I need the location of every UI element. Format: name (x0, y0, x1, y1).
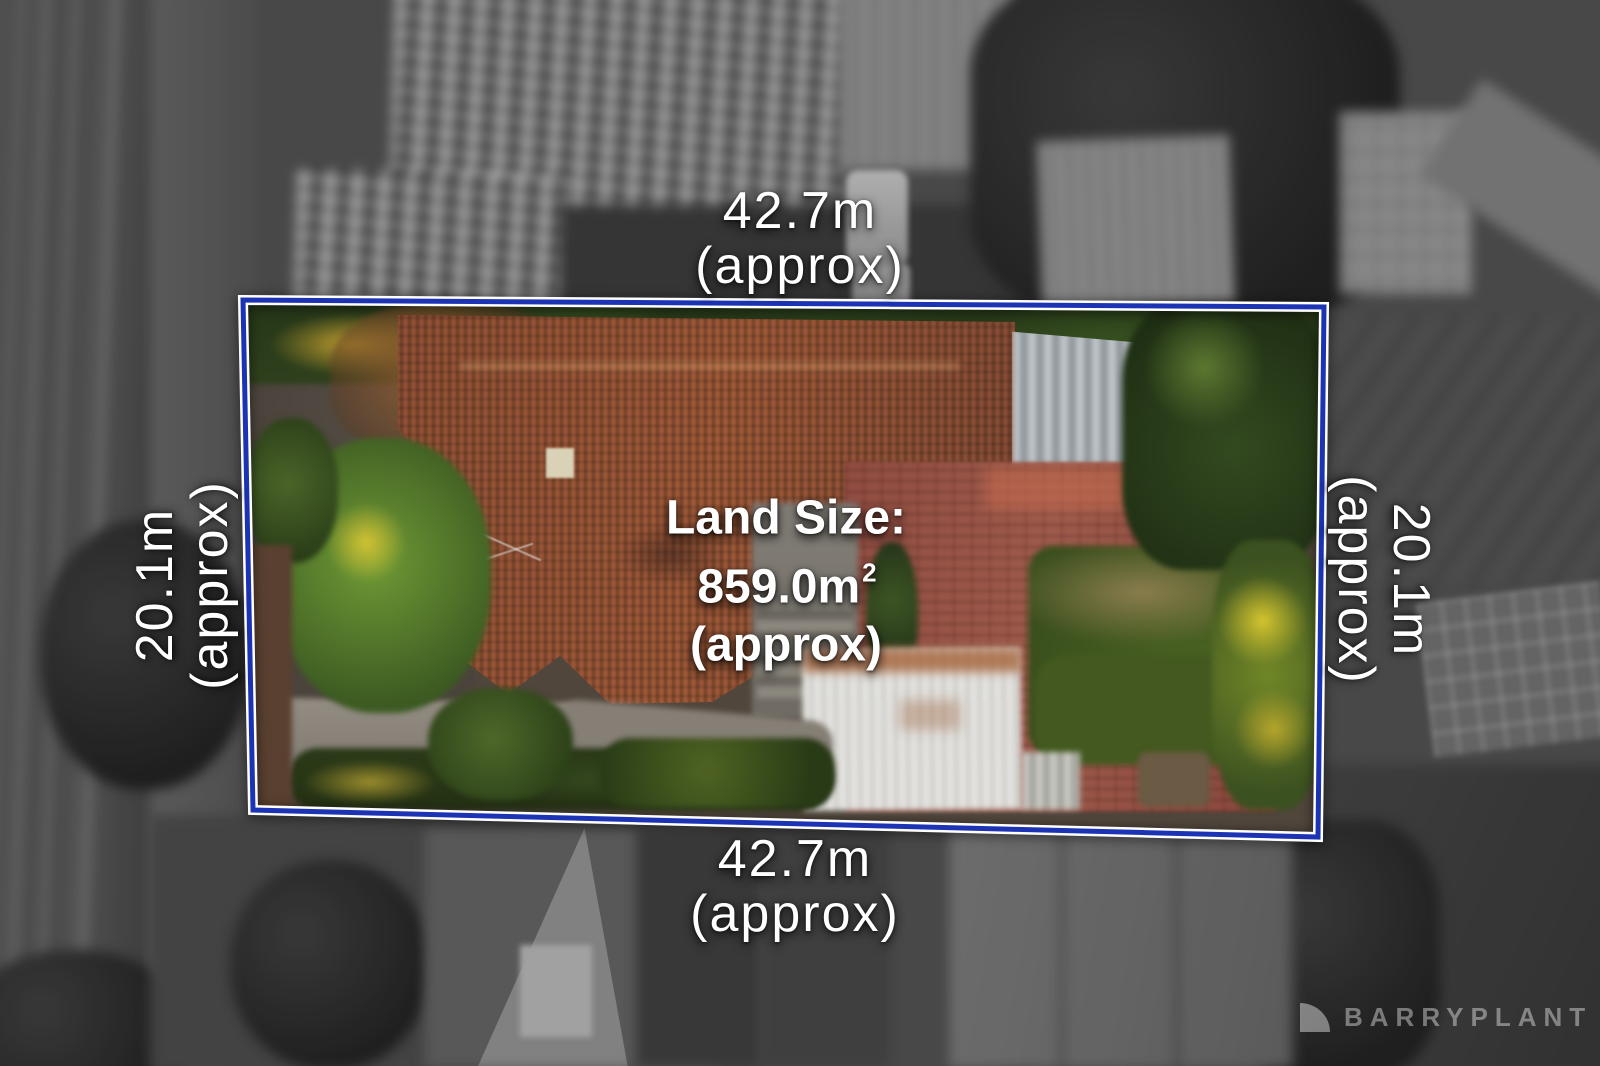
land-size-superscript: 2 (862, 558, 876, 588)
dimension-qualifier: (approx) (1328, 475, 1383, 685)
land-size-value: 859.0m (697, 561, 860, 614)
dimension-value: 42.7m (695, 184, 905, 239)
dimension-value: 20.1m (128, 480, 183, 690)
barry-plant-quarter-leaf-icon (1300, 1003, 1330, 1032)
land-size-value-line: 859.0m2 (666, 548, 906, 617)
land-size-caption: Land Size: 859.0m2 (approx) (666, 490, 906, 675)
land-size-qualifier: (approx) (666, 617, 906, 675)
dimension-value: 20.1m (1383, 475, 1438, 685)
dimension-qualifier: (approx) (183, 480, 238, 690)
dimension-label-left: 20.1m (approx) (128, 480, 238, 690)
dimension-label-top: 42.7m (approx) (695, 184, 905, 294)
dimension-qualifier: (approx) (690, 887, 900, 942)
dimension-qualifier: (approx) (695, 239, 905, 294)
dimension-label-bottom: 42.7m (approx) (690, 832, 900, 942)
agency-watermark: BARRYPLANT (1300, 1002, 1592, 1033)
dimension-value: 42.7m (690, 832, 900, 887)
dimension-label-right: 20.1m (approx) (1328, 475, 1438, 685)
agency-watermark-text: BARRYPLANT (1344, 1002, 1592, 1033)
land-size-label: Land Size: (666, 490, 906, 548)
aerial-property-photo: 42.7m (approx) 42.7m (approx) 20.1m (app… (0, 0, 1600, 1066)
